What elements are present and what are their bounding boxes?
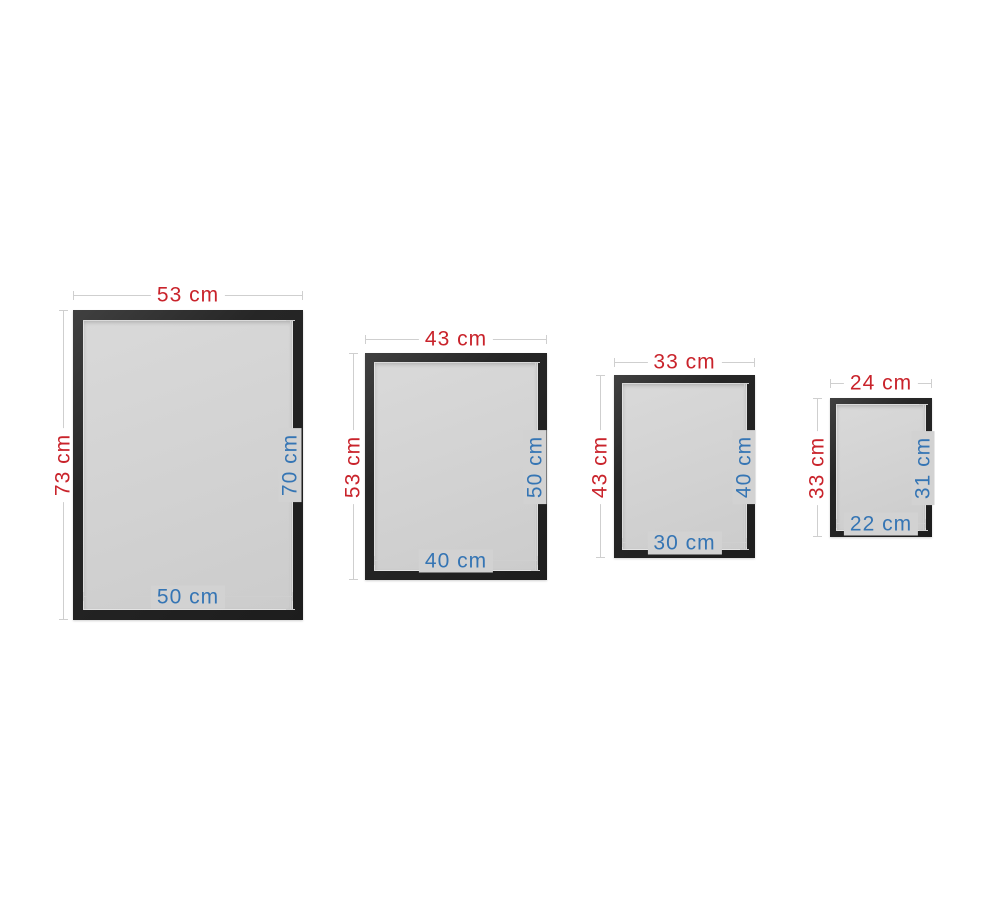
outer-width-label: 43 cm (419, 328, 493, 351)
frame-opening: 31 cm 22 cm (836, 404, 926, 531)
inner-height-label: 50 cm (524, 429, 547, 503)
frame-group-33x43: 33 cm 43 cm 40 cm 30 cm (614, 375, 755, 558)
inner-height-label: 70 cm (279, 428, 302, 502)
picture-frame: 31 cm 22 cm (830, 398, 932, 537)
inner-height-label: 31 cm (912, 430, 935, 504)
outer-height-label: 53 cm (342, 429, 365, 503)
frame-group-53x73: 53 cm 73 cm 70 cm 50 cm (73, 310, 303, 620)
inner-width-label: 30 cm (647, 532, 721, 555)
outer-width-label: 24 cm (844, 372, 918, 395)
inner-width-label: 40 cm (419, 550, 493, 573)
picture-frame: 70 cm 50 cm (73, 310, 303, 620)
frame-opening: 50 cm 40 cm (374, 362, 538, 571)
inner-width-label: 22 cm (844, 513, 918, 536)
frame-opening: 40 cm 30 cm (622, 383, 747, 550)
outer-width-label: 33 cm (647, 351, 721, 374)
outer-height-label: 33 cm (806, 430, 829, 504)
frame-group-24x33: 24 cm 33 cm 31 cm 22 cm (830, 398, 932, 537)
outer-height-label: 43 cm (589, 429, 612, 503)
picture-frame: 40 cm 30 cm (614, 375, 755, 558)
inner-width-label: 50 cm (151, 586, 225, 609)
outer-height-label: 73 cm (52, 428, 75, 502)
frame-size-diagram: 53 cm 73 cm 70 cm 50 cm 43 cm 53 cm 50 c… (0, 0, 1000, 915)
inner-height-label: 40 cm (733, 429, 756, 503)
outer-width-label: 53 cm (151, 284, 225, 307)
frame-group-43x53: 43 cm 53 cm 50 cm 40 cm (365, 353, 547, 580)
frame-opening: 70 cm 50 cm (83, 320, 293, 610)
picture-frame: 50 cm 40 cm (365, 353, 547, 580)
